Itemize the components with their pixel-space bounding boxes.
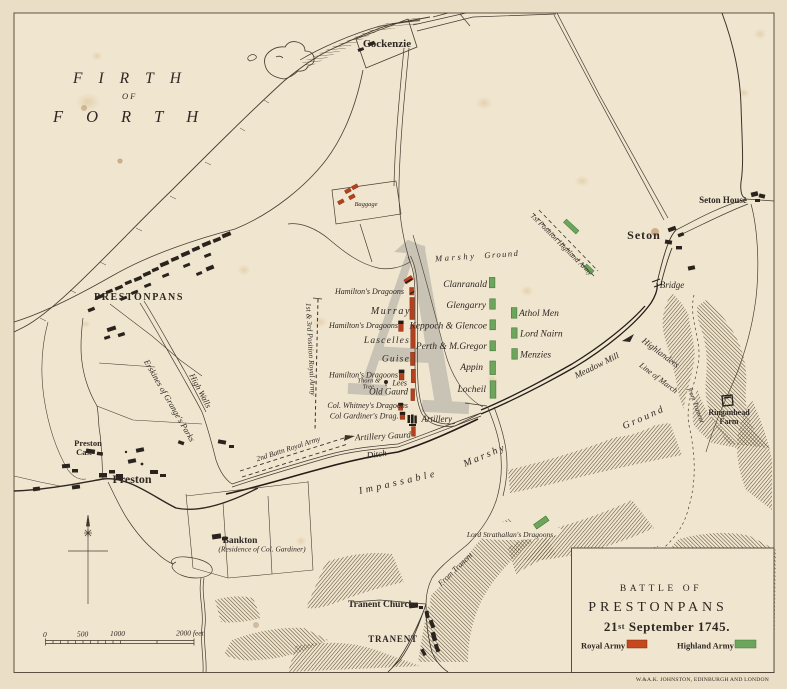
svg-text:Cas.: Cas. bbox=[76, 447, 92, 457]
svg-text:Menzies: Menzies bbox=[519, 351, 551, 361]
svg-text:Old Gaurd: Old Gaurd bbox=[369, 387, 408, 397]
svg-text:0: 0 bbox=[43, 630, 47, 639]
svg-text:(Residence of Col. Gardiner): (Residence of Col. Gardiner) bbox=[218, 545, 306, 554]
svg-text:2000 feet: 2000 feet bbox=[176, 629, 205, 638]
svg-text:Seton House: Seton House bbox=[699, 195, 747, 205]
svg-text:Farm: Farm bbox=[719, 417, 738, 426]
svg-text:FIRTH: FIRTH bbox=[72, 70, 197, 87]
svg-text:Tranent Church: Tranent Church bbox=[348, 600, 415, 610]
svg-text:Lascelles: Lascelles bbox=[363, 336, 410, 346]
svg-text:Col. Whitney's Dragoons: Col. Whitney's Dragoons bbox=[327, 401, 408, 410]
svg-text:Baggage: Baggage bbox=[354, 201, 377, 208]
svg-text:Col Gardiner's Drag.: Col Gardiner's Drag. bbox=[330, 412, 399, 421]
svg-text:Highland Army: Highland Army bbox=[677, 641, 735, 651]
svg-text:Ringanhead: Ringanhead bbox=[708, 408, 750, 417]
svg-text:Lord Nairn: Lord Nairn bbox=[519, 330, 563, 340]
svg-text:FORTH: FORTH bbox=[52, 107, 221, 126]
svg-text:Cockenzie: Cockenzie bbox=[363, 38, 411, 50]
svg-text:Appin: Appin bbox=[459, 363, 483, 373]
svg-text:OF: OF bbox=[122, 91, 137, 101]
svg-text:Guise: Guise bbox=[382, 355, 410, 365]
svg-text:Clanranald: Clanranald bbox=[443, 280, 487, 290]
svg-text:PRESTONPANS: PRESTONPANS bbox=[588, 600, 727, 615]
svg-text:Hamilton's Dragoons: Hamilton's Dragoons bbox=[328, 321, 398, 330]
svg-text:500: 500 bbox=[77, 630, 89, 639]
svg-text:Hamilton's Dragoons: Hamilton's Dragoons bbox=[334, 287, 404, 296]
svg-text:Preston: Preston bbox=[112, 472, 151, 486]
svg-text:Seton: Seton bbox=[627, 228, 661, 242]
svg-text:Lord Strathallan's Dragoons: Lord Strathallan's Dragoons bbox=[466, 530, 553, 539]
svg-text:Royal Army: Royal Army bbox=[581, 641, 626, 651]
svg-text:Bridge: Bridge bbox=[660, 280, 685, 290]
svg-text:Locheil: Locheil bbox=[457, 385, 487, 395]
svg-text:Glengarry: Glengarry bbox=[446, 301, 486, 311]
svg-text:Artillery: Artillery bbox=[421, 414, 453, 424]
svg-text:PRESTONPANS: PRESTONPANS bbox=[94, 292, 184, 303]
svg-text:Athol Men: Athol Men bbox=[518, 309, 559, 319]
svg-text:Perth & M.Gregor: Perth & M.Gregor bbox=[415, 342, 487, 352]
svg-text:TRANENT: TRANENT bbox=[368, 634, 418, 644]
svg-text:Keppoch & Glencoe: Keppoch & Glencoe bbox=[408, 322, 487, 332]
svg-text:Murray: Murray bbox=[370, 306, 411, 317]
svg-text:BATTLE OF: BATTLE OF bbox=[620, 584, 702, 594]
svg-text:W.&A.K. JOHNSTON, EDINBURGH AN: W.&A.K. JOHNSTON, EDINBURGH AND LONDON bbox=[636, 677, 769, 683]
svg-text:1000: 1000 bbox=[110, 629, 125, 638]
